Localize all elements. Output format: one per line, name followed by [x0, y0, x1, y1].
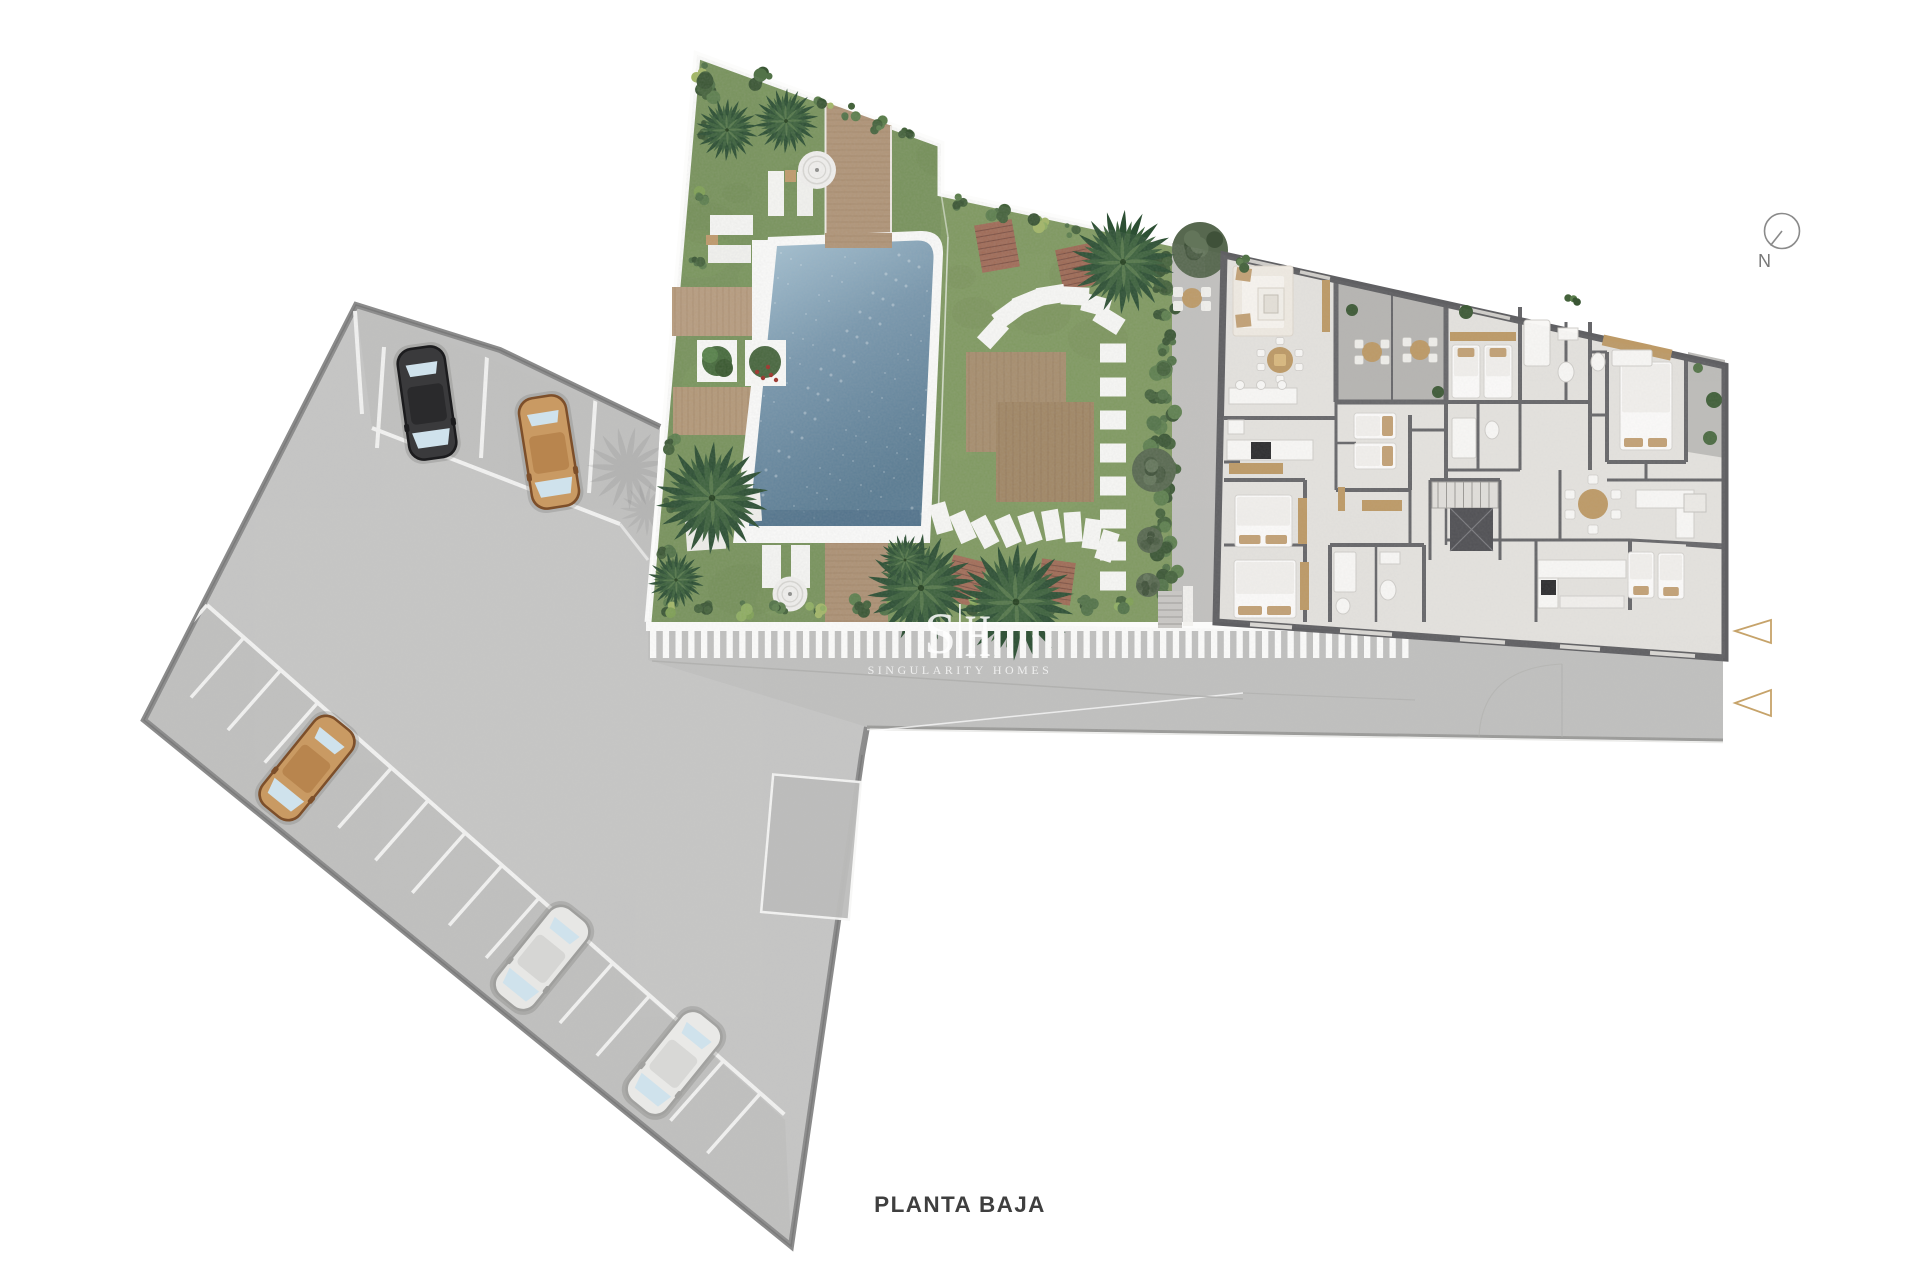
svg-text:S: S	[924, 601, 956, 666]
svg-text:H: H	[965, 603, 991, 670]
svg-text:PLANTA BAJA: PLANTA BAJA	[874, 1192, 1046, 1217]
svg-text:N: N	[1758, 251, 1771, 271]
svg-text:SINGULARITY HOMES: SINGULARITY HOMES	[868, 663, 1053, 677]
